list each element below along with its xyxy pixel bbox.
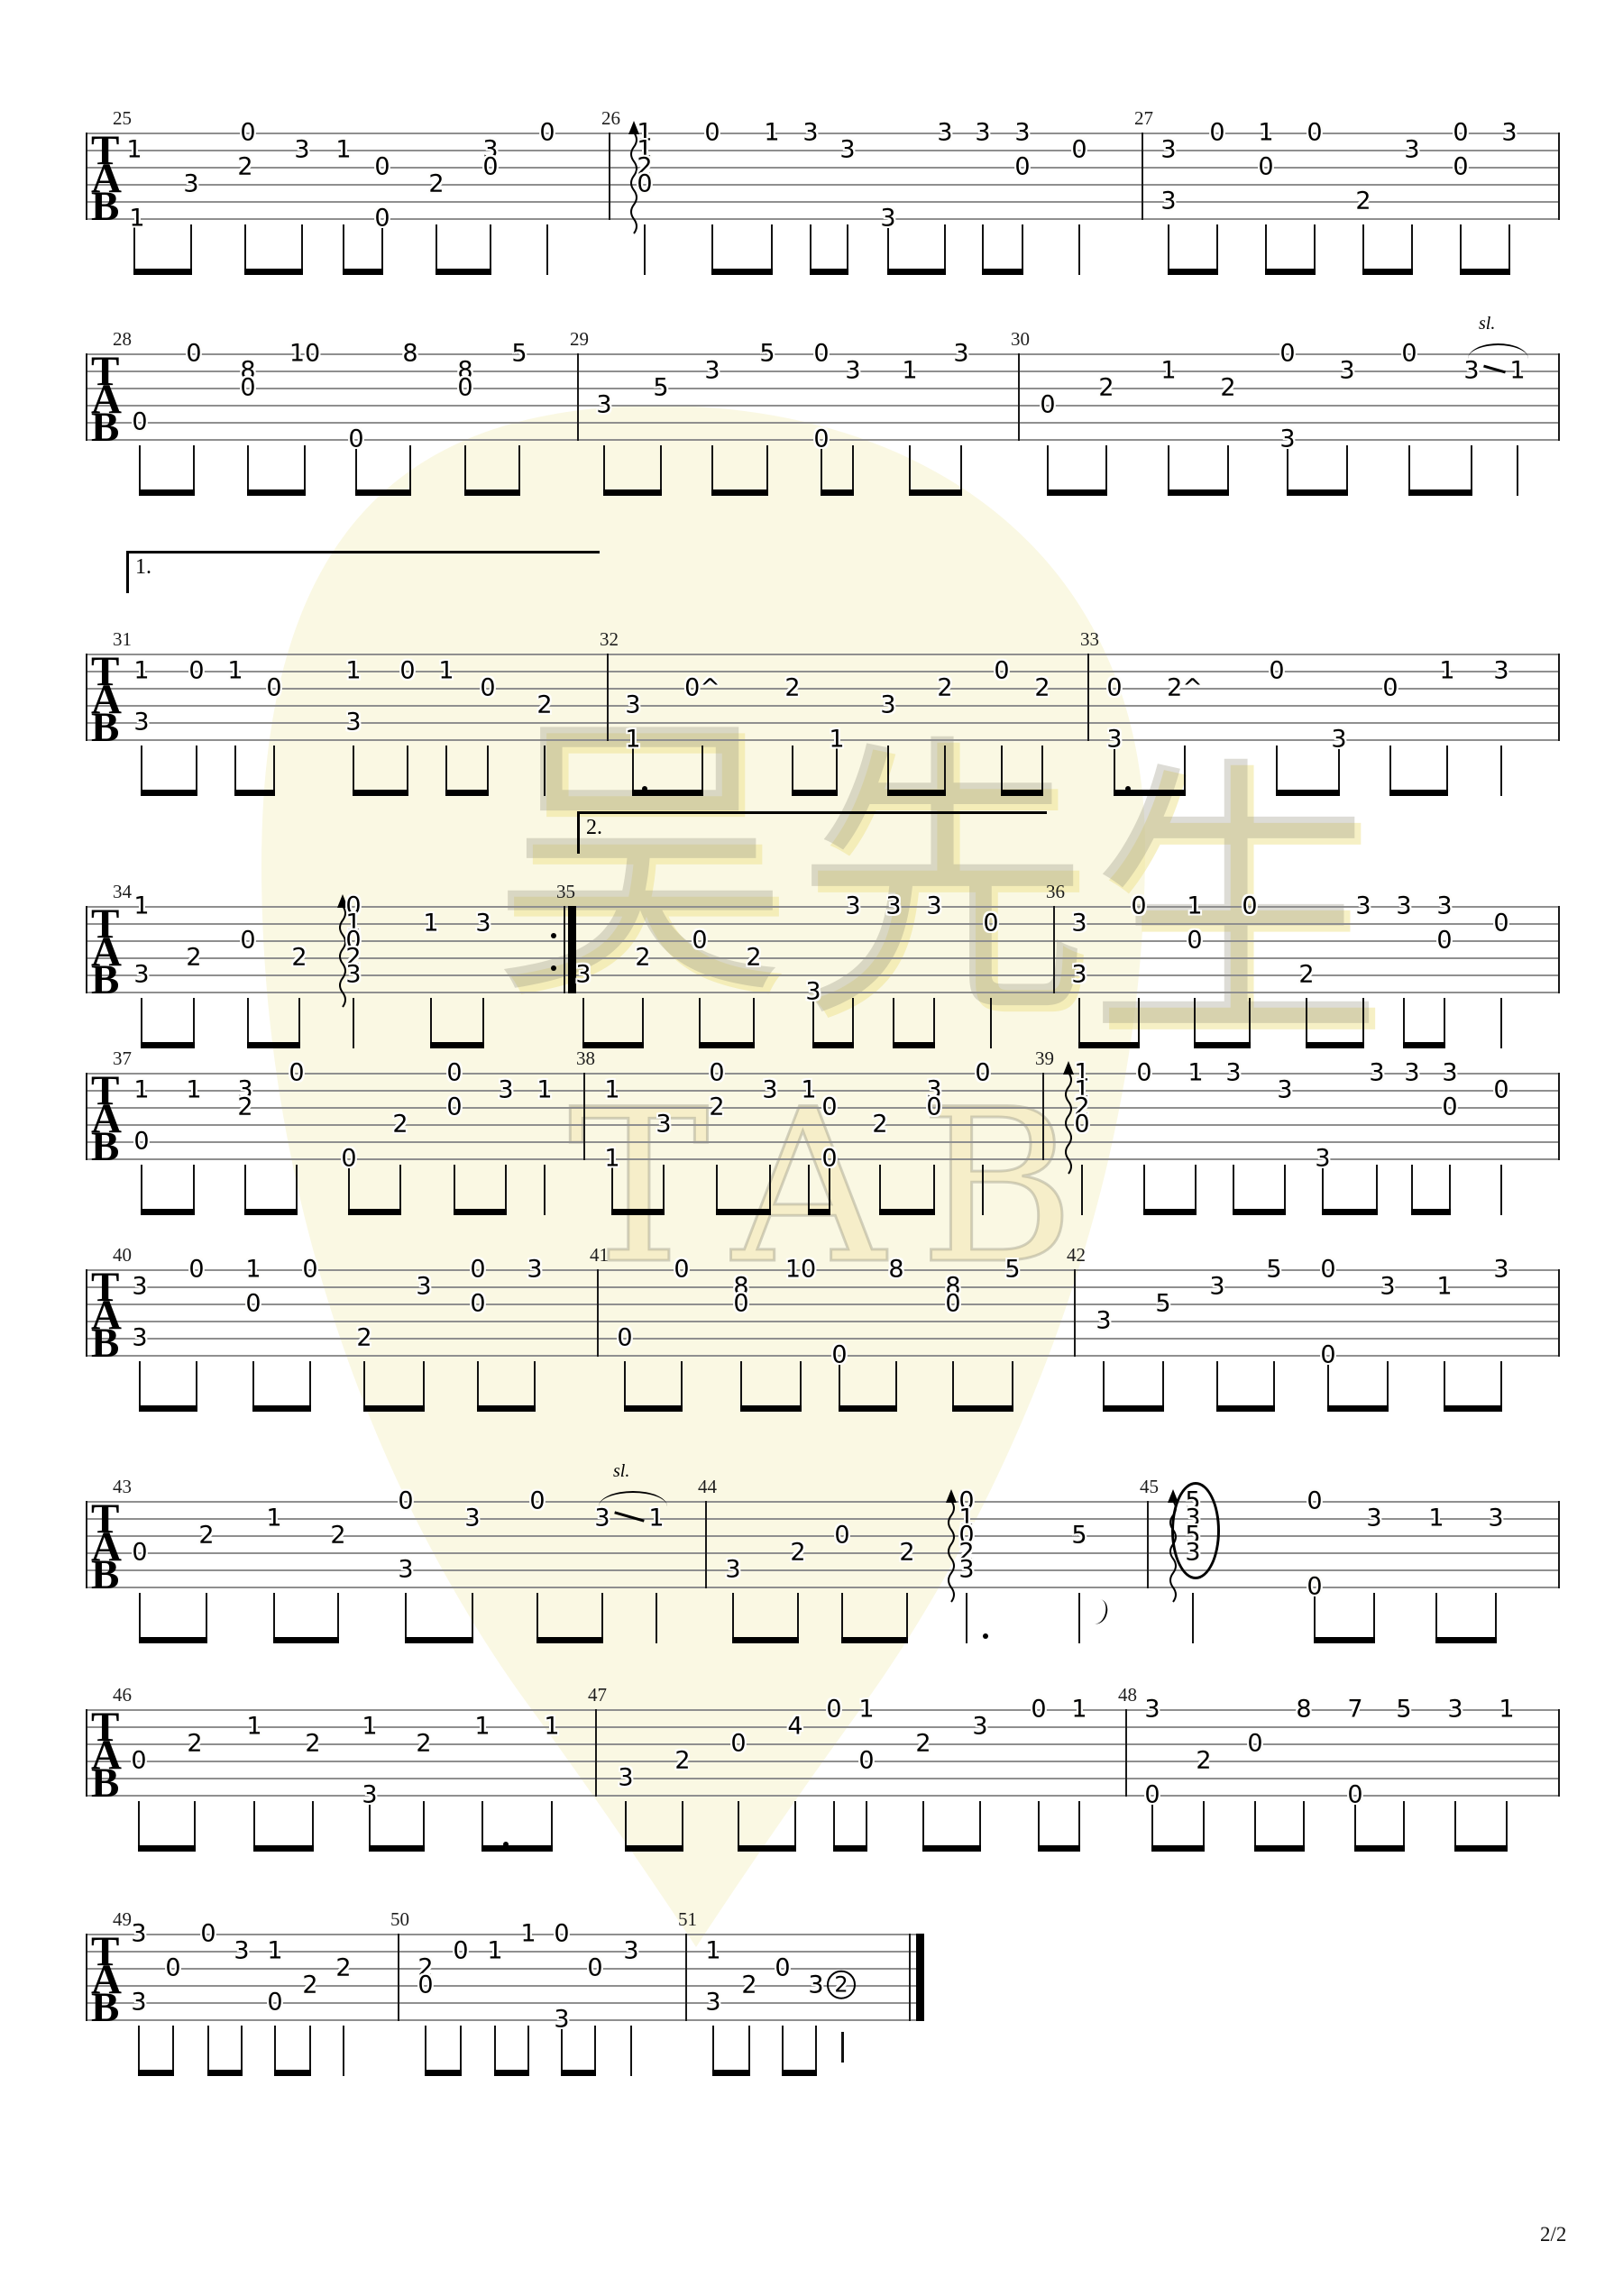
fret-number: 1 [705,1936,720,1964]
fret-number: 2 [1298,960,1314,988]
staff-line [86,2019,924,2021]
note-stem [893,998,894,1048]
note-stem [1151,1801,1153,1852]
fret-number: 5 [1266,1255,1281,1283]
fret-number: 1 [1187,892,1202,919]
note-stem [546,224,548,275]
fret-number: 3 [1339,356,1354,384]
fret-number: 1 [267,1936,282,1964]
fret-number: 2 [937,673,952,701]
note-stem [407,746,408,796]
note-stem [309,2026,311,2076]
slide-label: sl. [613,1461,629,1482]
fret-number: 2 [1098,373,1114,401]
note-stem [234,746,236,796]
system-end-barline [1558,654,1560,741]
measure-barline [685,1934,687,2021]
note-stem [536,1593,538,1643]
measure-number: 48 [1118,1684,1137,1706]
fret-number: 0 [245,1289,261,1317]
staff-line [86,1141,1560,1143]
fret-number: 3 [575,960,591,988]
fret-number: 0 [470,1255,485,1283]
fret-number: 0 [994,656,1009,684]
note-stem [852,445,854,496]
eighth-beam [139,1405,197,1412]
note-stem [1162,1361,1164,1412]
note-stem [138,2026,140,2076]
fret-number: 8 [888,1255,903,1283]
fret-number: 0 [813,425,829,453]
eighth-beam [841,1637,908,1643]
note-stem [1500,1361,1502,1412]
fret-number: 3 [475,909,491,937]
system-start-barline [86,906,87,993]
note-stem [1254,1801,1256,1852]
note-stem [644,224,646,275]
measure-barline [577,353,579,441]
staff-line [86,1304,1560,1305]
fret-number: 2 [237,152,252,180]
note-stem [298,998,300,1048]
fret-number: 3 [808,1971,823,1999]
note-stem [172,2026,174,2076]
fret-number: 3 [953,339,968,367]
note-stem [1314,1593,1316,1643]
note-stem [252,1361,254,1412]
fret-number: 3 [1404,1058,1419,1086]
note-stem [821,445,822,496]
eighth-beam [138,1845,196,1852]
note-stem [481,1801,483,1852]
note-stem [966,1593,967,1643]
fret-number: 2 [428,169,444,197]
staff-line [86,1726,1560,1728]
fret-number: 1 [544,1712,559,1740]
eighth-beam [782,2070,817,2076]
note-stem [829,1165,830,1215]
fret-number: 3 [802,118,818,146]
fret-number: 3 [1488,1504,1503,1532]
eighth-beam [1314,1637,1375,1643]
measure-barline [1018,353,1020,441]
staff-line [86,422,1560,424]
eighth-beam [1265,269,1316,275]
fret-number: 3 [398,1555,413,1583]
fret-number: 2 [1034,673,1050,701]
system-start-barline [86,133,87,220]
eighth-beam [436,269,491,275]
fret-number: 3 [1160,187,1176,215]
note-stem [1411,224,1413,275]
note-stem [663,1165,665,1215]
repeat-dot [551,965,556,971]
fret-number: 0 [341,1144,356,1172]
fret-number: 0 [1320,1340,1335,1368]
staff-line [86,1535,1560,1537]
fret-number: 3 [623,1936,638,1964]
eighth-beam [1354,1845,1405,1852]
fret-number: 3 [133,960,149,988]
eighth-beam [244,269,303,275]
measure-barline [1042,1073,1044,1160]
fret-number: 7 [1347,1695,1362,1723]
fret-number: 3 [1014,118,1030,146]
staff-line [86,405,1560,407]
fret-number: 2 [1220,373,1235,401]
fret-number: 0 [302,1255,317,1283]
fret-number: 0 [1401,339,1417,367]
eighth-beam [887,790,946,796]
note-stem [460,2026,462,2076]
note-stem [769,1165,771,1215]
note-stem [841,1593,843,1643]
fret-number: 1 [133,1075,149,1103]
note-stem [712,2026,714,2076]
note-stem [207,2026,209,2076]
measure-barline [398,1934,399,2021]
note-stem [193,998,195,1048]
tab-clef-letter: B [91,1762,119,1805]
fret-number: 1 [625,725,640,753]
eighth-beam [839,1405,897,1412]
fret-number: 0 [704,118,720,146]
measure-number: 42 [1067,1244,1086,1267]
fret-number: 2 [746,943,761,971]
fret-number: 0 [1307,1572,1322,1600]
note-stem [139,445,141,496]
fret-number: 2 [187,1729,202,1757]
eighth-beam [738,1845,796,1852]
fret-number: 3 [133,708,149,736]
note-stem [518,445,520,496]
note-stem [1081,1165,1083,1215]
tab-clef-letter: B [91,1322,119,1365]
fret-number: 1 [126,135,142,163]
staff-line [86,1090,1560,1092]
eighth-beam [1444,1405,1502,1412]
note-stem [1471,445,1472,496]
staff-line [86,1124,1560,1126]
note-stem [1403,1801,1405,1852]
fret-number: 2 [416,1729,431,1757]
measure-barline [1147,1501,1149,1588]
staff-line [86,1761,1560,1762]
note-stem [1168,224,1169,275]
fret-number: 3 [705,1988,720,2016]
fret-number: 0 [975,1058,990,1086]
eighth-beam [247,1042,300,1048]
note-stem [312,1801,314,1852]
eighth-beam [1143,1209,1197,1215]
eighth-beam [348,1209,401,1215]
fret-number: 0 [587,1953,602,1981]
note-stem [1168,445,1169,496]
staff-line [86,1321,1560,1322]
slide-line [614,1511,645,1522]
system-start-barline [86,353,87,441]
note-stem [551,1801,553,1852]
fret-number: 3 [1501,118,1517,146]
note-stem [582,998,584,1048]
note-stem [405,1593,407,1643]
measure-number: 38 [576,1047,595,1070]
note-stem [922,1801,924,1852]
fret-number: 3 [594,1504,610,1532]
note-stem [494,2026,496,2076]
fret-number: 0 [374,152,390,180]
fret-number: 0 [289,1058,304,1086]
eighth-beam [273,1637,339,1643]
fret-number: 3 [972,1712,987,1740]
note-stem [353,998,354,1048]
fret-number: 1 [487,1936,502,1964]
note-stem [482,998,484,1048]
measure-barline [705,1501,707,1588]
measure-barline [1087,654,1089,741]
system-end-barline [1558,1073,1560,1160]
eighth-beam [632,790,703,796]
fret-number: 3 [1096,1306,1111,1334]
circled-fret-number: 2 [827,1971,856,1999]
fret-number: 1 [520,1919,536,1947]
note-stem [1105,445,1107,496]
note-stem [1078,998,1080,1048]
note-stem [1376,1165,1378,1215]
eighth-beam [445,790,489,796]
eighth-beam [821,489,854,496]
tab-clef-letter: B [91,959,119,1002]
eighth-beam [1078,1042,1140,1048]
note-stem [594,2026,596,2076]
eighth-beam [732,1637,799,1643]
fret-number: 1 [648,1504,664,1532]
fret-number: 0 [399,656,415,684]
staff-line [86,1501,1560,1503]
note-stem [304,445,306,496]
system-end-barline [1558,906,1560,993]
note-stem [611,1165,613,1215]
fret-number: 3 [958,1555,974,1583]
measure-number: 30 [1011,328,1030,351]
measure-number: 39 [1035,1047,1054,1070]
note-stem [141,746,142,796]
fret-number: 2 [915,1729,931,1757]
fret-number: 3 [1225,1058,1241,1086]
note-stem [274,2026,276,2076]
fret-number: 0 [188,1255,204,1283]
measure-barline [595,1709,597,1797]
fret-number: 3 [416,1272,431,1300]
fret-number: 0 [692,926,707,954]
note-stem [423,1361,425,1412]
note-stem [603,445,605,496]
measure-number: 36 [1046,881,1065,903]
fret-number: 0 [267,1988,282,2016]
note-stem [887,224,889,275]
note-stem [1500,746,1502,796]
note-stem [753,998,755,1048]
repeat-dot [551,933,556,938]
fret-number: 3 [885,892,901,919]
fret-number: 5 [1071,1521,1087,1549]
fret-number: 1 [1439,656,1454,684]
eighth-beam [1001,790,1043,796]
fret-number: 3 [1071,960,1087,988]
eighth-beam [1151,1845,1205,1852]
note-stem [141,1165,142,1215]
eighth-beam [810,269,848,275]
fret-number: 0 [1071,135,1087,163]
fret-number: 0 [821,1144,837,1172]
fret-number: 2^ [1167,673,1203,701]
fret-number: 3 [845,892,860,919]
fret-number: 3 [132,1272,147,1300]
note-stem [490,224,491,275]
eighth-beam [1327,1405,1389,1412]
staff-line [86,1355,1560,1357]
fret-number: 3 [1463,356,1479,384]
staff-line [86,671,1560,672]
staff-line [86,201,1560,203]
note-stem [952,1361,954,1412]
note-stem [1387,1361,1389,1412]
fret-number: 3 [1366,1504,1381,1532]
staff-line [86,705,1560,707]
note-stem [196,746,197,796]
fret-number: 0 [1347,1780,1362,1808]
measure-number: 45 [1140,1476,1159,1498]
eighth-beam [481,1845,553,1852]
note-stem [1265,224,1267,275]
measure-number: 34 [113,881,132,903]
fret-number: 1 [245,1255,261,1283]
eighth-beam [353,790,408,796]
fret-number: 2 [198,1521,214,1549]
fret-number: 3 [1404,135,1419,163]
note-stem [1435,1593,1437,1643]
fret-number: 3 [1277,1075,1292,1103]
eighth-beam [355,489,411,496]
fret-number: 0 [539,118,555,146]
fret-number: 3 [1369,1058,1384,1086]
note-stem [244,224,246,275]
note-stem [601,1593,603,1643]
fret-number: 2 [305,1729,320,1757]
fret-number: 5 [759,339,775,367]
circled-chord-oval [1171,1482,1220,1579]
staff-line [86,688,1560,690]
note-stem [1322,1165,1324,1215]
fret-number: 0 [1074,1110,1089,1138]
note-stem [425,2026,426,2076]
eighth-beam [952,1405,1013,1412]
fret-number: 3 [937,118,952,146]
eighth-beam [625,1845,683,1852]
fret-number: 2 [674,1746,690,1774]
fret-number: 2 [741,1971,756,1999]
fret-number: 1 [227,656,243,684]
fret-number: 0 [482,152,498,180]
note-stem [1303,1801,1305,1852]
fret-number: 3 [131,1988,146,2016]
measure-barline [609,133,610,220]
measure-barline [1053,906,1055,993]
fret-number: 3 [596,390,611,418]
fret-number: 3 [345,708,361,736]
fret-number: 0 [1493,909,1508,937]
fret-number: 0 [1131,892,1146,919]
fret-number: 3 [345,960,361,988]
arpeggio-arrow [943,1488,959,1607]
note-stem [544,1165,546,1215]
fret-number: 3 [926,892,941,919]
note-stem [141,998,142,1048]
fret-number: 0 [1279,339,1295,367]
fret-number: 0 [470,1289,485,1317]
note-stem [343,224,344,275]
rhythm-dot [983,1633,988,1639]
fret-number: 0 [1258,152,1273,180]
note-stem [1001,746,1003,796]
note-stem [933,1165,935,1215]
note-stem [1500,1165,1502,1215]
fret-number: 1 [246,1712,261,1740]
eighth-beam [207,2070,243,2076]
eighth-beam [1254,1845,1305,1852]
fret-number: 2 [536,691,552,718]
eighth-beam [454,1209,507,1215]
staff-line [86,923,1560,925]
fret-number: 1 [1436,1272,1452,1300]
note-stem [1446,746,1448,796]
tie-curve [1088,1597,1110,1626]
eighth-beam [1411,1209,1451,1215]
fret-number: 2 [635,943,650,971]
fret-number: 0 [983,909,998,937]
eighth-beam [1047,489,1107,496]
measure-number: 41 [590,1244,609,1267]
repeat-thin-barline [564,906,565,993]
note-stem [1373,1593,1375,1643]
fret-number: 1 [335,135,351,163]
system-start-barline [86,1934,87,2021]
fret-number: 3 [880,691,895,718]
note-stem [732,1593,734,1643]
note-stem [369,1801,371,1852]
eighth-beam [244,1209,298,1215]
fret-number: 0 [637,169,652,197]
note-stem [782,2026,784,2076]
fret-number: 2 [1355,187,1371,215]
note-stem [247,445,249,496]
system-start-barline [86,1709,87,1797]
eighth-beam [139,489,195,496]
measure-barline [607,654,609,741]
note-stem [800,1361,802,1412]
note-stem [477,1361,479,1412]
fret-number: 3 [183,169,198,197]
staff-line [86,992,1560,993]
fret-number: 0 [1269,656,1284,684]
note-stem [815,2026,817,2076]
note-stem [1249,998,1251,1048]
note-stem [1346,445,1348,496]
fret-number: 1 [133,656,149,684]
fret-number: 2 [872,1110,887,1138]
fret-number: 1 [829,725,844,753]
fret-number: 0 [1442,1093,1457,1121]
